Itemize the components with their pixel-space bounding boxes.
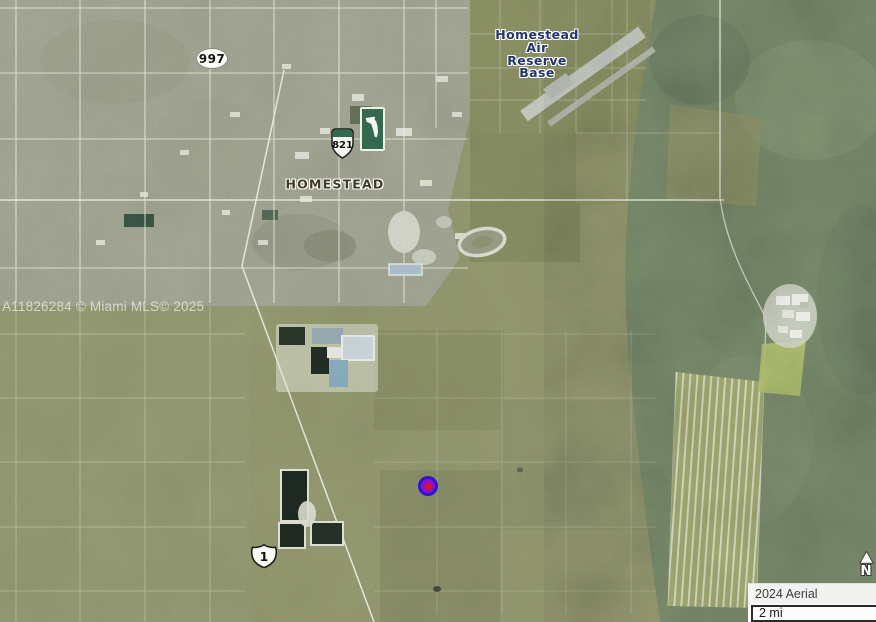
airbase-label: Homestead Air Reserve Base — [495, 29, 578, 80]
scale-bar: 2 mi — [748, 604, 876, 622]
photo-credit-bar: 2024 Aerial Photography — [748, 583, 876, 604]
route-997-number: 997 — [199, 52, 226, 66]
scale-bar-label: 2 mi — [759, 606, 783, 620]
aerial-map[interactable]: 997 821 HOMESTEAD Homestead Air Reserve … — [0, 0, 876, 622]
property-marker[interactable] — [418, 476, 438, 496]
north-letter: N — [860, 563, 871, 579]
route-shield-997-icon: 997 — [196, 48, 228, 69]
route-shield-821-icon: 821 — [330, 127, 355, 160]
florida-turnpike-logo-icon — [360, 107, 385, 151]
route-shield-us1-icon: 1 — [249, 542, 279, 569]
north-arrow: N — [855, 551, 876, 577]
florida-silhouette-icon — [364, 112, 381, 146]
property-marker-ring — [421, 479, 435, 493]
route-821-number: 821 — [330, 140, 355, 151]
city-label-homestead: HOMESTEAD — [286, 177, 385, 192]
route-us1-number: 1 — [249, 549, 279, 564]
mls-watermark: A11826284 © Miami MLS© 2025 — [2, 299, 204, 314]
airbase-label-line: Base — [495, 67, 578, 80]
property-marker-center — [425, 483, 432, 490]
scale-bar-box: 2 mi — [751, 605, 876, 622]
